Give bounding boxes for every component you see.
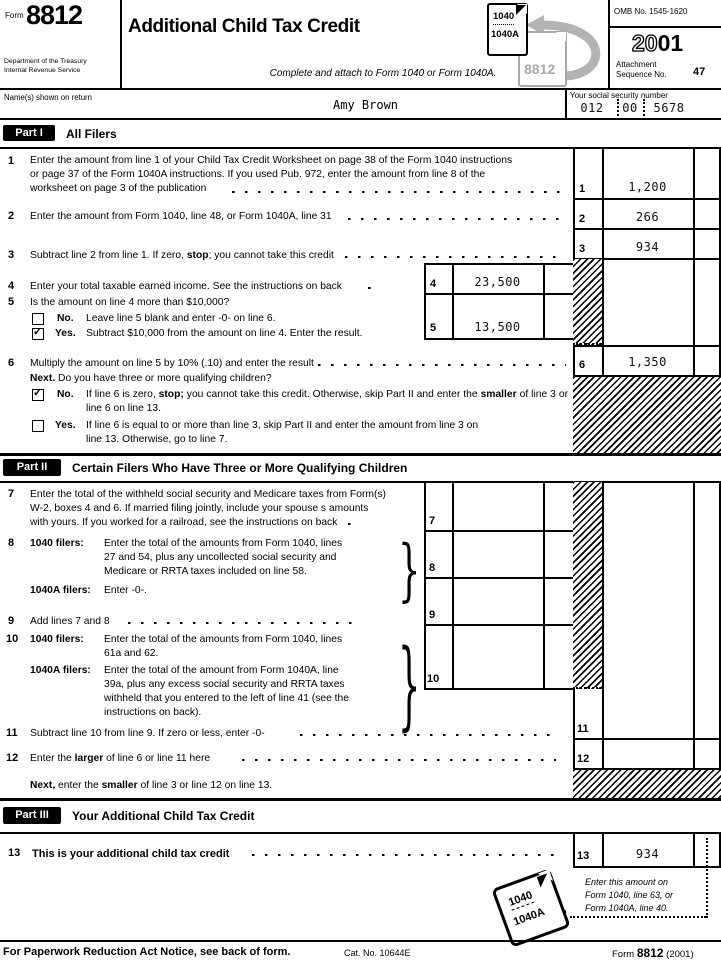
line5-no-label: No. xyxy=(57,312,74,326)
grid-line xyxy=(424,577,573,579)
part2-bottom-rule xyxy=(0,798,721,801)
grid-line xyxy=(424,688,573,690)
cell-line2-number: 2 xyxy=(579,213,585,225)
grid-line xyxy=(719,481,721,798)
cell-line10-number: 10 xyxy=(427,673,439,685)
dot-leader xyxy=(128,622,354,624)
line3-text: Subtract line 2 from line 1. If zero, st… xyxy=(30,249,334,263)
cell-line12-number: 12 xyxy=(577,753,589,765)
line8-1040-text: Enter the total of the amounts from Form… xyxy=(104,537,400,579)
line6-amount-field[interactable]: 1,350 xyxy=(602,355,693,369)
line3-number: 3 xyxy=(8,249,14,261)
paperwork-notice: For Paperwork Reduction Act Notice, see … xyxy=(3,946,291,958)
part2-heading: Certain Filers Who Have Three or More Qu… xyxy=(72,461,407,475)
line8-1040a-filers-label: 1040A filers: xyxy=(30,584,91,598)
cell-line13-number: 13 xyxy=(577,850,589,862)
ssn-area-field[interactable]: 012 xyxy=(572,101,612,115)
line4-amount-field[interactable]: 23,500 xyxy=(452,275,543,289)
line12-post: of line 6 or line 11 here xyxy=(103,753,210,764)
ssn-group-field[interactable]: 00 xyxy=(617,101,643,115)
grid-line xyxy=(424,481,426,688)
line6-next-text: Next. Do you have three or more qualifyi… xyxy=(30,372,272,386)
attachment-line1: Attachment xyxy=(616,60,656,69)
form-number: 8812 xyxy=(26,0,82,31)
doc-front-top-label: 1040 xyxy=(493,11,514,25)
line1-amount-field[interactable]: 1,200 xyxy=(602,180,693,194)
cell-line3-number: 3 xyxy=(579,243,585,255)
next2-post: of line 3 or line 12 on line 13. xyxy=(138,780,273,791)
line2-number: 2 xyxy=(8,210,14,222)
dept-line1: Department of the Treasury xyxy=(4,58,87,66)
check-icon: ✓ xyxy=(33,386,42,399)
name-label: Name(s) shown on return xyxy=(4,91,92,105)
footer-rule xyxy=(0,940,721,942)
part1-heading: All Filers xyxy=(66,127,117,141)
line6-no-text: If line 6 is zero, stop; you cannot take… xyxy=(86,388,568,416)
attachment-line2: Sequence No. xyxy=(616,70,667,79)
line11-number: 11 xyxy=(6,727,18,739)
dot-leader xyxy=(348,523,356,525)
footer-form-number: 8812 xyxy=(637,946,664,960)
line12-number: 12 xyxy=(6,752,18,764)
line3-text-post: ; you cannot take this credit xyxy=(209,250,334,261)
line10-number: 10 xyxy=(6,633,18,645)
cell-line4-number: 4 xyxy=(430,278,436,290)
form-8812-page: Form 8812 Department of the Treasury Int… xyxy=(0,0,721,963)
part1-top-rule xyxy=(0,147,721,149)
grid-line xyxy=(602,481,604,798)
part2-top-rule xyxy=(0,481,721,483)
catalog-number: Cat. No. 10644E xyxy=(344,948,411,958)
cell-line11-number: 11 xyxy=(577,723,589,735)
line6-no-checkbox[interactable]: ✓ xyxy=(32,389,44,401)
note-text: Enter this amount on Form 1040, line 63,… xyxy=(585,876,673,915)
grid-line xyxy=(573,866,721,868)
part3-tab: Part III xyxy=(3,807,61,824)
line9-number: 9 xyxy=(8,615,14,627)
doc-back-label: 8812 xyxy=(524,61,555,77)
line7-number: 7 xyxy=(8,488,14,500)
grid-line xyxy=(424,338,573,340)
cell-line5-number: 5 xyxy=(430,322,436,334)
line5-no-checkbox[interactable] xyxy=(32,313,44,325)
grid-line xyxy=(543,263,545,338)
line5-yes-text: Subtract $10,000 from the amount on line… xyxy=(86,327,362,341)
line8-number: 8 xyxy=(8,537,14,549)
line9-text: Add lines 7 and 8 xyxy=(30,615,110,629)
tax-year-solid: 01 xyxy=(658,30,684,56)
line6-no-bold2: smaller xyxy=(481,389,517,400)
line6-number: 6 xyxy=(8,357,14,369)
line13-number: 13 xyxy=(8,847,20,859)
line1-number: 1 xyxy=(8,155,14,167)
line5-amount-field[interactable]: 13,500 xyxy=(452,320,543,334)
line8-brace: } xyxy=(398,532,420,610)
page-subtitle: Complete and attach to Form 1040 or Form… xyxy=(238,68,528,79)
line10-1040a-text: Enter the total of the amount from Form … xyxy=(104,664,400,720)
header-divider xyxy=(120,0,122,88)
cell-line7-number: 7 xyxy=(429,515,435,527)
part2-tab: Part II xyxy=(3,459,61,476)
next2-mid: enter the xyxy=(55,780,101,791)
line5-number: 5 xyxy=(8,296,14,308)
part1-bottom-rule xyxy=(0,453,721,456)
shaded-strip xyxy=(573,259,602,345)
grid-line xyxy=(424,263,573,265)
dot-leader xyxy=(368,287,376,289)
grid-line xyxy=(693,481,695,798)
tax-year-outline: 20 xyxy=(632,30,658,56)
cell-line6-number: 6 xyxy=(579,359,585,371)
grid-line xyxy=(424,624,573,626)
omb-number: OMB No. 1545-1620 xyxy=(614,7,687,16)
cell-line1-number: 1 xyxy=(579,183,585,195)
line6-no-label: No. xyxy=(57,388,74,402)
grid-line xyxy=(693,832,695,866)
line5-yes-label: Yes. xyxy=(55,327,76,341)
grid-line xyxy=(424,263,426,338)
shaded-block xyxy=(573,377,721,455)
check-icon: ✓ xyxy=(33,325,42,338)
dot-leader xyxy=(232,191,566,193)
footer-form-year: (2001) xyxy=(666,949,693,960)
line3-text-bold: stop xyxy=(187,250,209,261)
next-bold: Next. xyxy=(30,373,55,384)
footer-form-word: Form xyxy=(612,949,634,960)
line6-yes-label: Yes. xyxy=(55,419,76,433)
line10-brace: } xyxy=(398,631,420,742)
line13-amount-field[interactable]: 934 xyxy=(602,847,693,861)
dot-leader xyxy=(348,218,566,220)
line4-number: 4 xyxy=(8,280,14,292)
name-row-rule xyxy=(0,118,721,120)
grid-line xyxy=(719,832,721,866)
line6-no-mid: you cannot take this credit. Otherwise, … xyxy=(184,389,481,400)
dot-leader xyxy=(318,364,566,366)
line5-no-text: Leave line 5 blank and enter -0- on line… xyxy=(86,312,275,326)
line6-no-bold1: stop; xyxy=(159,389,184,400)
line8-1040-filers-label: 1040 filers: xyxy=(30,537,84,551)
shaded-block xyxy=(573,770,721,798)
grid-line xyxy=(573,345,721,347)
name-field[interactable]: Amy Brown xyxy=(333,98,398,112)
grid-line xyxy=(573,228,721,230)
line2-amount-field[interactable]: 266 xyxy=(602,210,693,224)
cell-line8-number: 8 xyxy=(429,562,435,574)
line3-amount-field[interactable]: 934 xyxy=(602,240,693,254)
next2-bold2: smaller xyxy=(102,780,138,791)
line7-text: Enter the total of the withheld social s… xyxy=(30,488,422,530)
line6-text: Multiply the amount on line 5 by 10% (.1… xyxy=(30,357,314,371)
part3-top-rule xyxy=(0,832,721,834)
grid-line xyxy=(543,481,545,688)
note-dotted-border xyxy=(706,838,708,918)
line13-text: This is your additional child tax credit xyxy=(32,847,229,861)
grid-line xyxy=(424,530,573,532)
cell-line9-number: 9 xyxy=(429,609,435,621)
line12-text: Enter the larger of line 6 or line 11 he… xyxy=(30,752,210,766)
line1-text: Enter the amount from line 1 of your Chi… xyxy=(30,154,570,196)
tax-year: 2001 xyxy=(632,30,683,57)
shaded-strip xyxy=(573,482,602,689)
line3-text-pre: Subtract line 2 from line 1. If zero, xyxy=(30,250,187,261)
grid-line xyxy=(452,481,454,688)
grid-line xyxy=(573,198,721,200)
line6-yes-checkbox[interactable] xyxy=(32,420,44,432)
doc-front-bottom-label: 1040A xyxy=(491,29,519,40)
next2-bold1: Next, xyxy=(30,780,55,791)
line5-text: Is the amount on line 4 more than $10,00… xyxy=(30,296,229,310)
form-word-label: Form xyxy=(5,11,24,20)
line12-next-text: Next, enter the smaller of line 3 or lin… xyxy=(30,779,272,793)
line5-yes-checkbox[interactable]: ✓ xyxy=(32,328,44,340)
line6-yes-text: If line 6 is equal to or more than line … xyxy=(86,419,568,447)
footer-form-id: Form 8812 (2001) xyxy=(612,946,694,960)
doc-bottom-bottom-label: 1040A xyxy=(512,906,547,928)
grid-line xyxy=(719,147,721,375)
line12-pre: Enter the xyxy=(30,753,75,764)
line11-text: Subtract line 10 from line 9. If zero or… xyxy=(30,727,265,741)
part3-heading: Your Additional Child Tax Credit xyxy=(72,809,254,823)
page-title: Additional Child Tax Credit xyxy=(128,16,428,38)
line10-1040a-filers-label: 1040A filers: xyxy=(30,664,91,678)
line4-text: Enter your total taxable earned income. … xyxy=(30,280,342,294)
sequence-number: 47 xyxy=(693,66,705,78)
omb-underline xyxy=(608,26,721,28)
dot-leader xyxy=(252,854,560,856)
ssn-serial-field[interactable]: 5678 xyxy=(645,101,693,115)
dot-leader xyxy=(242,759,556,761)
line8-1040a-text: Enter -0-. xyxy=(104,584,147,598)
grid-line xyxy=(573,738,721,740)
doc-bottom-top-label: 1040 xyxy=(507,889,535,911)
grid-line xyxy=(424,293,573,295)
grid-line xyxy=(693,147,695,375)
dot-leader xyxy=(300,734,556,736)
grid-line xyxy=(573,832,575,866)
line6-no-pre: If line 6 is zero, xyxy=(86,389,159,400)
line2-text: Enter the amount from Form 1040, line 48… xyxy=(30,210,332,224)
next-rest: Do you have three or more qualifying chi… xyxy=(55,373,271,384)
dept-line2: Internal Revenue Service xyxy=(4,67,80,75)
note-dotted-leader xyxy=(570,916,706,918)
line10-1040-text: Enter the total of the amounts from Form… xyxy=(104,633,400,661)
form-1040-doc-icon: 1040 1040A xyxy=(487,3,528,56)
line12-bold: larger xyxy=(75,753,104,764)
line10-1040-filers-label: 1040 filers: xyxy=(30,633,84,647)
dot-leader xyxy=(345,256,566,258)
part1-tab: Part I xyxy=(3,125,55,141)
form-1040-doc-icon-bottom: 1040 1040A xyxy=(491,868,570,947)
